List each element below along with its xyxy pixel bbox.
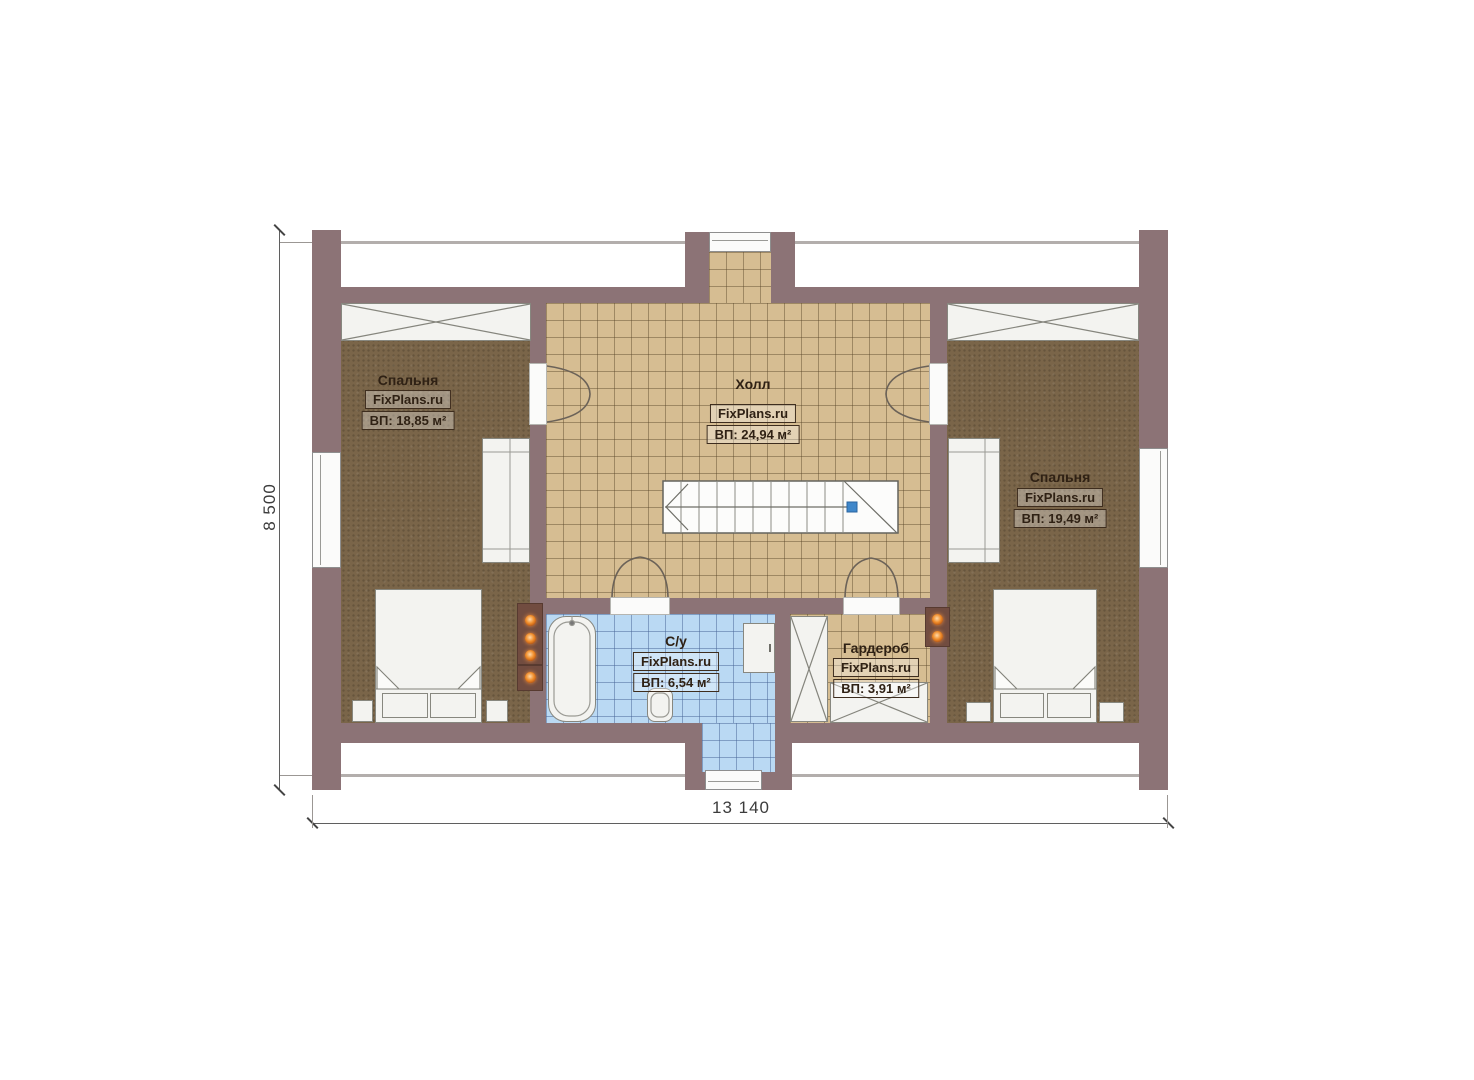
wall-hall-bedroomR-lower [930,423,947,723]
hall-floor [546,303,930,598]
nightstand [352,700,373,722]
roof-edge-top-left [341,241,685,244]
nightstand [1099,702,1124,722]
room-area-bedroom-right: ВП: 19,49 м² [1014,509,1107,528]
door-opening-bedroom-left [529,363,547,425]
flue-icon [525,672,536,683]
bathroom-bay-floor [702,723,775,772]
fixplans-watermark: FixPlans.ru [710,404,796,423]
room-name-bedroom-left: Спальня [378,372,438,388]
window-glazing-line [708,781,759,782]
room-area-wardrobe: ВП: 3,91 м² [833,679,919,698]
dimension-label-height: 8 500 [260,483,280,531]
fixplans-watermark: FixPlans.ru [1017,488,1103,507]
wall-top-left [341,287,685,303]
window-left [312,452,341,568]
window-bay-bottom [705,770,762,790]
window-right [1139,448,1168,568]
dimension-label-width: 13 140 [712,798,770,818]
wall-hall-bottom-b [670,598,843,614]
closet-bedroom-right [947,303,1139,341]
extension-line-bottom-left [312,795,313,828]
flue-icon [525,650,536,661]
bed-left-pillow [382,693,428,718]
sofa-bedroom-right [948,438,1000,563]
room-name-bathroom: С/у [665,633,687,649]
bed-right-pillow [1047,693,1091,718]
bathroom-cabinet [743,623,775,673]
room-area-bathroom: ВП: 6,54 м² [633,673,719,692]
window-glazing-line [1160,451,1161,565]
room-area-hall: ВП: 24,94 м² [707,425,800,444]
door-opening-bedroom-right [929,363,948,425]
fixplans-watermark: FixPlans.ru [833,658,919,677]
extension-line-bottom-right [1167,795,1168,828]
fixplans-watermark: FixPlans.ru [633,652,719,671]
window-dormer-top [709,232,771,252]
room-name-wardrobe: Гардероб [843,640,909,656]
room-area-bedroom-left: ВП: 18,85 м² [362,411,455,430]
window-glazing-line [712,240,768,241]
chimney-block-left [517,603,543,691]
fixplans-watermark: FixPlans.ru [365,390,451,409]
floor-plan-canvas: Спальня FixPlans.ru ВП: 18,85 м² Холл Fi… [0,0,1474,1080]
wall-hall-bottom-a [546,598,610,614]
roof-edge-top-right [795,241,1139,244]
door-opening-bathroom [610,597,670,615]
roof-edge-bottom-right [792,774,1139,777]
flue-icon [525,615,536,626]
bed-left-pillow [430,693,476,718]
wardrobe-unit-left [790,616,828,722]
wall-dormer-right [771,232,795,303]
hall-dormer-floor [709,252,771,303]
extension-line-top [279,242,312,243]
window-glazing-line [320,455,321,565]
chimney-divider [518,664,542,666]
wall-bottom-right [792,723,1139,743]
bed-right-pillow [1000,693,1044,718]
wall-dormer-left [685,232,709,303]
room-name-hall: Холл [735,376,770,392]
room-name-bedroom-right: Спальня [1030,469,1090,485]
wall-bottom-left [341,723,685,743]
wall-hall-bedroomR-upper [930,303,947,365]
wall-bedroomL-hall-upper [530,303,546,365]
roof-edge-bottom-left [341,774,685,777]
nightstand [966,702,991,722]
toilet [647,688,673,722]
dimension-line-width [312,823,1168,824]
sofa-bedroom-left [482,438,530,563]
chimney-block-right [925,607,950,647]
wall-top-right [795,287,1139,303]
flue-icon [932,614,943,625]
wall-bath-wardrobe [775,614,790,723]
bathtub [548,616,596,722]
flue-icon [525,633,536,644]
door-opening-wardrobe [843,597,900,615]
flue-icon [932,631,943,642]
closet-bedroom-left [341,303,531,341]
extension-line-bottom [279,775,312,776]
nightstand [486,700,508,722]
